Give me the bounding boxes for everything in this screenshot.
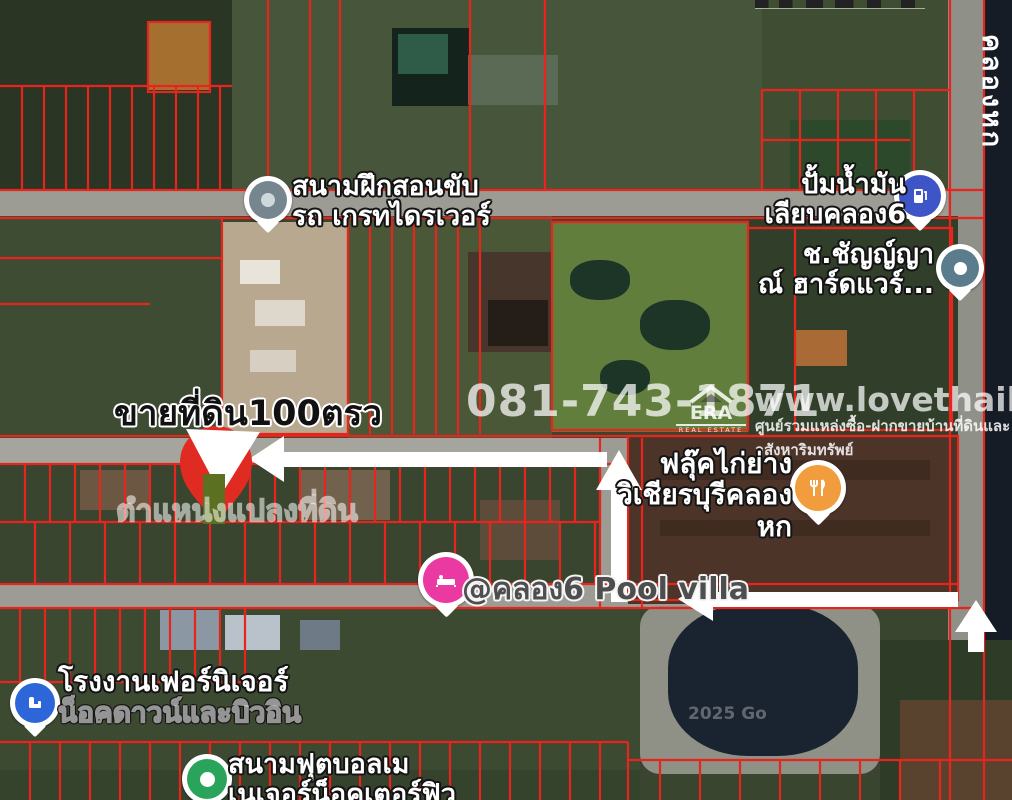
route-arrow-shaft-upper xyxy=(280,452,607,467)
poi-label-line: ปั้มน้ำมัน xyxy=(768,170,906,200)
canal-name-label: คลองหก xyxy=(982,34,1012,244)
hardware-store-label: ช.ชัญญ์ญา ณ์ ฮาร์ดแวร์... xyxy=(758,240,934,300)
route-arrow-west-upper xyxy=(249,436,284,482)
poi-label-line: สนามฟุตบอลเม xyxy=(228,750,456,780)
poi-label-line: สนามฝึกสอนขับ xyxy=(292,172,491,202)
poi-label-line-faint: น็อคดาวน์และบิวอิน xyxy=(58,697,301,728)
driving-school-pin[interactable] xyxy=(244,176,292,224)
plot-position-label: ตำแหน่งแปลงที่ดิน xyxy=(116,488,358,535)
generic-pin-icon xyxy=(941,249,979,287)
site-tagline: ศูนย์รวมแหล่งซื้อ-ฝากขายบ้านที่ดินและอสั… xyxy=(755,414,1012,462)
poi-label-line: วิเชียรบุรีคลองหก xyxy=(606,479,792,542)
football-field-label: สนามฟุตบอลเม เนเจอร์น็อคเตอร์ฟิว xyxy=(228,750,456,800)
era-logo: ERA REAL ESTATE xyxy=(676,384,746,434)
poi-label-line: ฟลุ๊คไก่ย่าง xyxy=(606,448,792,479)
driving-school-label: สนามฝึกสอนขับ รถ เกรทไดรเวอร์ xyxy=(292,172,491,232)
hardware-store-pin[interactable] xyxy=(936,244,984,292)
era-house-icon xyxy=(676,384,746,404)
poi-label-line: โรงงานเฟอร์นิเจอร์ xyxy=(58,666,301,697)
restaurant-label: ฟลุ๊คไก่ย่าง วิเชียรบุรีคลองหก xyxy=(606,448,792,542)
generic-pin-icon xyxy=(249,181,287,219)
gas-station-label: ปั้มน้ำมัน เลียบคลอง6 xyxy=(768,170,906,230)
poi-label-line: รถ เกรทไดรเวอร์ xyxy=(292,202,491,232)
poi-label-line: เลียบคลอง6 xyxy=(750,200,906,230)
google-watermark-fragment: 2025 Go xyxy=(688,704,767,724)
furniture-factory-pin[interactable] xyxy=(10,678,60,728)
poi-label-line: ณ์ ฮาร์ดแวร์... xyxy=(758,270,934,300)
restaurant-icon xyxy=(795,465,841,511)
pool-villa-label: @คลอง6 Pool villa xyxy=(462,566,749,613)
route-arrow-north-right xyxy=(955,600,997,632)
sale-title: ขายที่ดิน100ตรว xyxy=(114,386,382,441)
sports-icon xyxy=(187,759,227,799)
route-arrow-shaft-right xyxy=(968,630,984,652)
football-field-pin[interactable] xyxy=(182,754,232,800)
poi-label-line: ช.ชัญญ์ญา xyxy=(758,240,934,270)
restaurant-pin[interactable] xyxy=(790,460,846,516)
satellite-map: สนามฝึกสอนขับ รถ เกรทไดรเวอร์ ปั้มน้ำมัน… xyxy=(0,0,1012,800)
furniture-factory-label: โรงงานเฟอร์นิเจอร์ น็อคดาวน์และบิวอิน xyxy=(58,666,301,729)
poi-label-line: เนเจอร์น็อคเตอร์ฟิว xyxy=(228,780,456,800)
furniture-icon xyxy=(15,683,55,723)
